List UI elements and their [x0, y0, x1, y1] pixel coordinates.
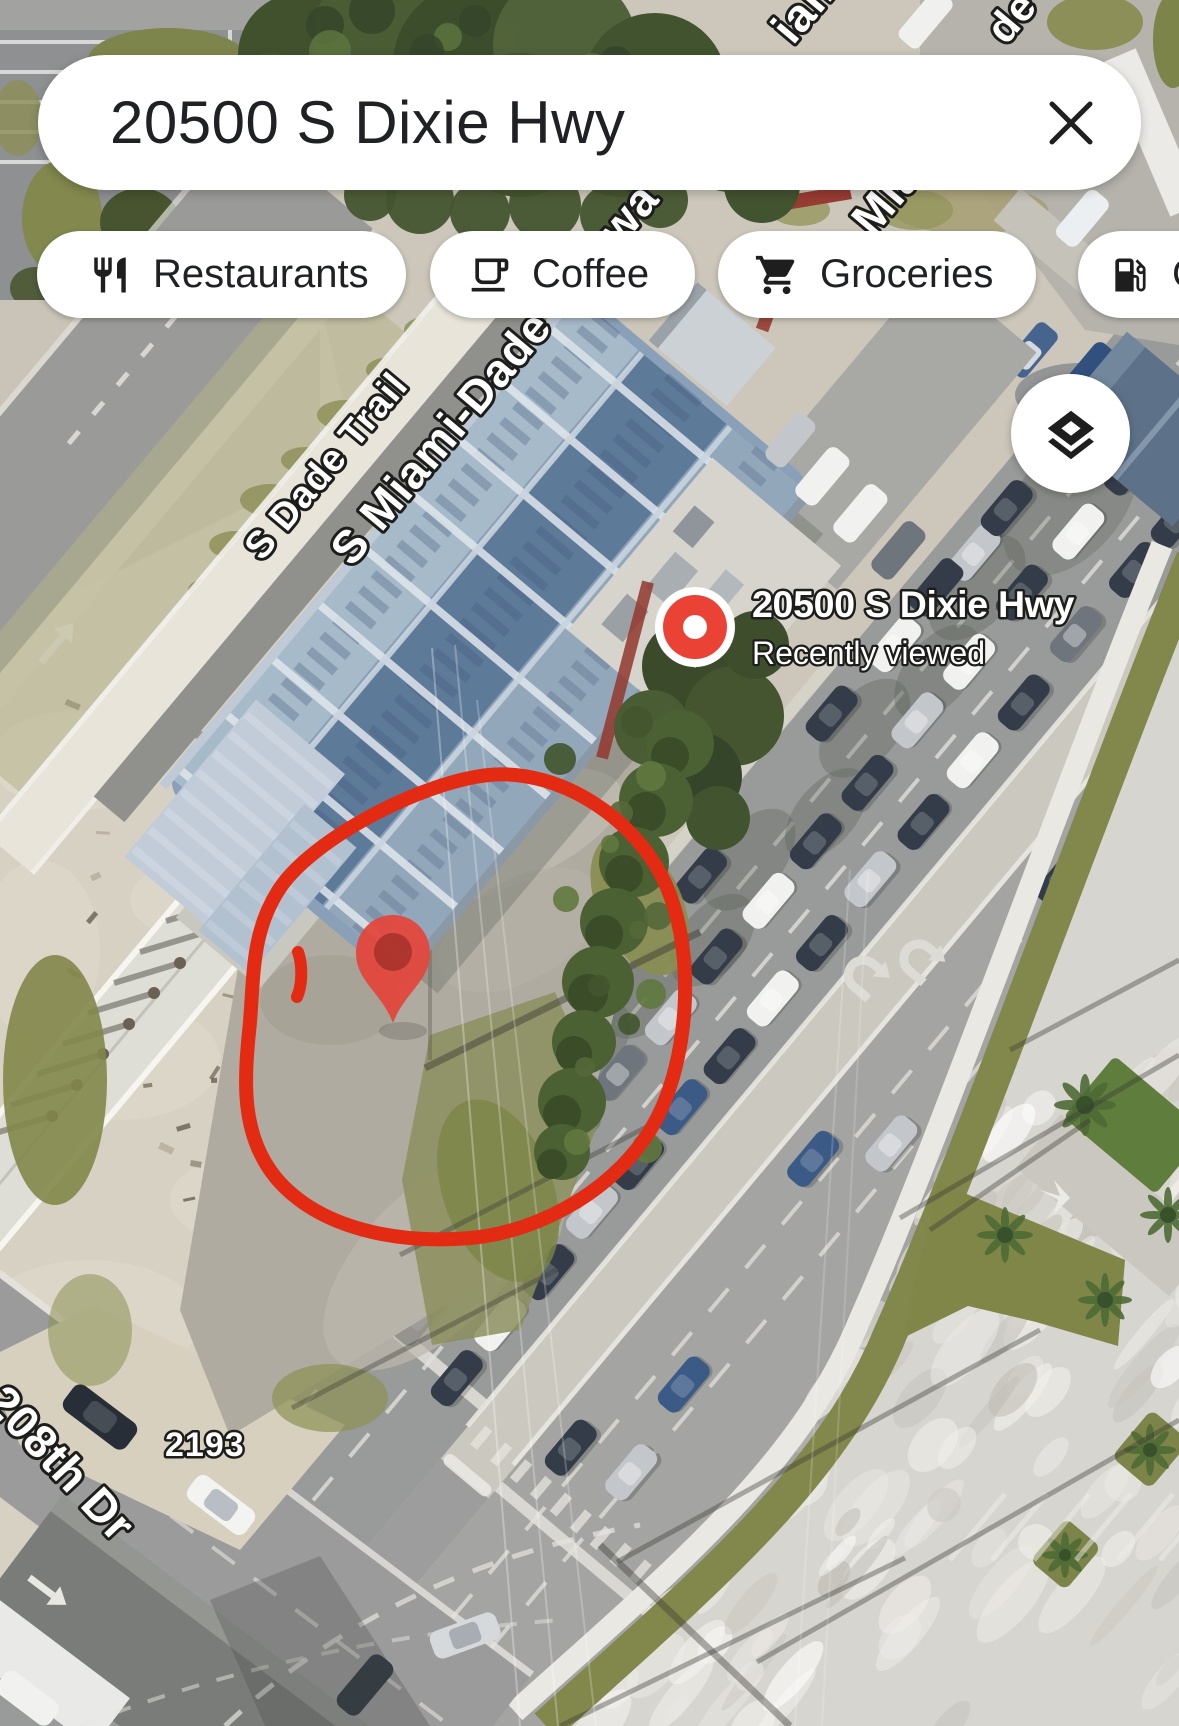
svg-text:20500 S Dixie Hwy: 20500 S Dixie Hwy [752, 583, 1075, 625]
svg-text:2193: 2193 [165, 1426, 245, 1464]
svg-text:Recently viewed: Recently viewed [752, 635, 985, 671]
